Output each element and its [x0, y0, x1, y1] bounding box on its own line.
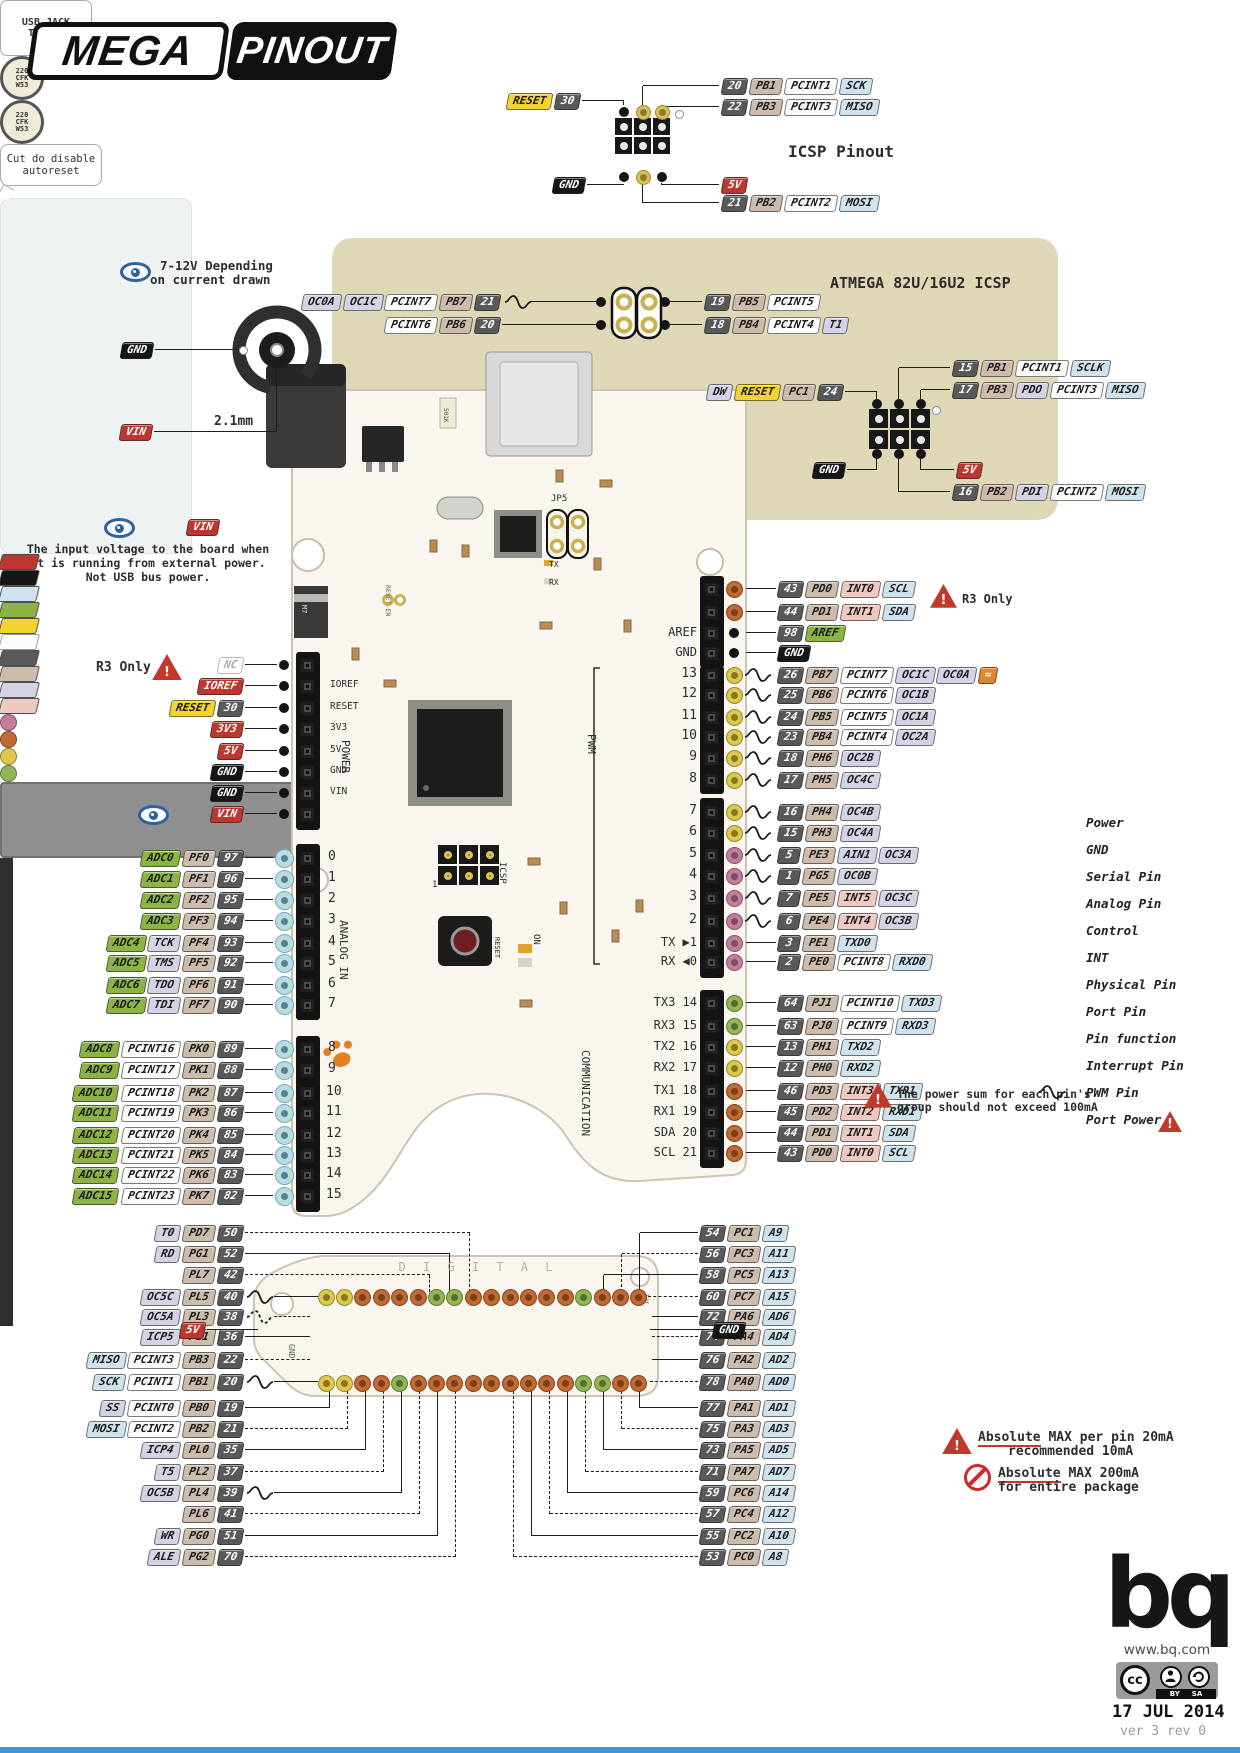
pin-chip-adc14: ADC14 — [72, 1167, 120, 1184]
pin-label-row: 60PC7A15 — [700, 1288, 795, 1306]
legend-label: Port Power — [1086, 1112, 1161, 1127]
wire — [245, 1048, 273, 1049]
wire — [899, 491, 950, 492]
wire — [623, 101, 624, 105]
pin-chip-90: 90 — [216, 997, 244, 1014]
pin-chip-pb2: PB2 — [980, 484, 1015, 501]
wire — [642, 86, 643, 105]
pin-chip-pcint23: PCINT23 — [120, 1188, 181, 1205]
pin-label-row: 15PH3OC4A — [778, 824, 880, 842]
pin-label-row: RDPG152 — [155, 1245, 243, 1263]
pin-dot-bl — [275, 1126, 294, 1145]
pin-dot-bl — [275, 1104, 294, 1123]
pin-chip-13: 13 — [777, 1039, 805, 1056]
bottom-accent-bar — [0, 1747, 1240, 1753]
cc-by-icon — [1160, 1666, 1182, 1688]
pwm-squiggle-icon — [744, 889, 772, 911]
board-silk-text: IOREF — [330, 679, 359, 690]
pin-chip-pcint8: PCINT8 — [836, 954, 891, 971]
wire — [502, 324, 597, 325]
pin-chip-pk7: PK7 — [181, 1188, 216, 1205]
pin-label-row: GND — [713, 1321, 745, 1339]
board-silk-text: SCL 21 — [654, 1145, 697, 1159]
wire — [245, 750, 277, 751]
pin-chip-oc2b: OC2B — [840, 750, 881, 767]
wire — [898, 368, 899, 399]
board-silk-text: POWER — [339, 740, 352, 773]
wire — [621, 1254, 622, 1292]
pin-chip-pcint6: PCINT6 — [840, 687, 895, 704]
wire — [365, 1386, 366, 1450]
pin-chip-44: 44 — [777, 1125, 805, 1142]
pin-chip-18: 18 — [704, 317, 732, 334]
pin-chip-pcint22: PCINT22 — [120, 1167, 181, 1184]
wire — [746, 1002, 776, 1003]
pin-dot-pk — [726, 847, 743, 864]
pin-chip-20: 20 — [473, 317, 501, 334]
header-pin — [301, 702, 314, 715]
pin-dot-or — [354, 1289, 371, 1306]
pin-chip-pb3: PB3 — [980, 382, 1015, 399]
wire — [746, 961, 776, 962]
footer-version: ver 3 rev 0 — [1120, 1724, 1206, 1739]
pin-label-row: MOSIPCINT2PB221 — [87, 1420, 243, 1438]
board-silk-text: 3V3 — [330, 722, 347, 733]
header-pin — [705, 1106, 718, 1119]
pin-chip-pg5: PG5 — [802, 868, 837, 885]
pin-chip-pc1: PC1 — [781, 384, 816, 401]
pin-dot-bk — [279, 681, 289, 691]
pin-chip-6: 6 — [777, 913, 802, 930]
pin-chip-int0: INT0 — [840, 1145, 881, 1162]
pin-label-row: MISOPCINT3PB322 — [87, 1351, 243, 1369]
note-text: it is running from external power. — [18, 556, 278, 570]
wire — [429, 1275, 430, 1292]
pin-dot-bl — [275, 849, 294, 868]
wire — [245, 1407, 330, 1408]
pin-dot-bk — [660, 297, 670, 307]
cc-icon: cc — [1120, 1665, 1150, 1695]
pin-chip-gnd: GND — [712, 1322, 747, 1339]
pin-chip-30: 30 — [553, 93, 581, 110]
header-pin — [705, 997, 718, 1010]
note-text: The input voltage to the board when — [18, 542, 278, 556]
pin-chip-96: 96 — [216, 871, 244, 888]
pin-chip-pb2: PB2 — [749, 195, 784, 212]
pin-chip-pg0: PG0 — [181, 1528, 216, 1545]
atmega-panel-title: ATMEGA 82U/16U2 ICSP — [830, 274, 1011, 292]
wire — [643, 202, 719, 203]
pin-chip-a8: A8 — [762, 1549, 790, 1566]
pin-chip-nc: NC — [216, 657, 244, 674]
pin-chip-92: 92 — [216, 955, 244, 972]
pin-dot-bl — [275, 1146, 294, 1165]
pwm-squiggle-icon — [744, 803, 772, 825]
pin-label-row: 5V — [218, 742, 243, 760]
board-silk-text: JP5 — [551, 494, 567, 504]
pin-dot-bl — [275, 996, 294, 1015]
pin-chip-tdi: TDI — [147, 997, 182, 1014]
wire — [746, 632, 776, 633]
header-pin — [301, 1087, 314, 1100]
pin-dot-ye — [318, 1375, 335, 1392]
wire — [154, 431, 277, 432]
wire — [568, 1492, 698, 1493]
pin-dot-or — [410, 1375, 427, 1392]
pin-chip-pcint1: PCINT1 — [784, 78, 839, 95]
legend-swatch-ana — [0, 602, 40, 618]
pin-dot-bl — [275, 1084, 294, 1103]
pin-chip-ad5: AD5 — [762, 1442, 797, 1459]
pin-chip-adc6: ADC6 — [105, 977, 146, 994]
pin-chip-pcint7: PCINT7 — [840, 667, 895, 684]
pin-chip-oc3c: OC3C — [878, 890, 919, 907]
wire — [920, 390, 921, 399]
icsp-header-pin — [911, 430, 930, 449]
pin-chip-58: 58 — [699, 1267, 727, 1284]
board-silk-text: RESET — [330, 701, 359, 712]
board-silk-text: 5 — [328, 954, 336, 969]
pin-dot-or — [630, 1375, 647, 1392]
pin-dot-bl — [275, 870, 294, 889]
board-silk-text: 1 — [432, 880, 437, 890]
pin-chip-12: 12 — [777, 1060, 805, 1077]
wire — [245, 771, 277, 772]
pin-dot-bk — [279, 746, 289, 756]
pin-label-row: VIN — [187, 518, 219, 536]
pin-chip-pb1: PB1 — [181, 1374, 216, 1391]
wire — [604, 1449, 698, 1450]
header-pin — [301, 852, 314, 865]
pin-chip-pk0: PK0 — [181, 1041, 216, 1058]
pin-label-row: ADC0PF097 — [141, 849, 243, 867]
wire — [622, 1428, 698, 1429]
note-text: 7-12V Depending — [160, 258, 273, 273]
pin-chip-sck: SCK — [838, 78, 873, 95]
pin-chip-pk4: PK4 — [181, 1127, 216, 1144]
pin-chip-pl7: PL7 — [181, 1267, 216, 1284]
icsp-header-pin — [459, 845, 478, 864]
pin-chip-pe5: PE5 — [802, 890, 837, 907]
header-pin — [301, 1107, 314, 1120]
pin-chip-pd7: PD7 — [181, 1225, 216, 1242]
pin-label-row: 17PH5OC4C — [778, 771, 880, 789]
pin-chip-pf7: PF7 — [181, 997, 216, 1014]
pin-chip-a14: A14 — [762, 1485, 797, 1502]
pin-chip-icp4: ICP4 — [140, 1442, 181, 1459]
pin-label-row: 5PE3AIN1OC3A — [778, 846, 918, 864]
pin-label-row: 76PA2AD2 — [700, 1351, 795, 1369]
board-silk-text: TX2 16 — [654, 1039, 697, 1053]
board-silk-text: AREF — [668, 625, 697, 639]
footer-date: 17 JUL 2014 — [1112, 1702, 1225, 1722]
pin-dot-or — [726, 1083, 743, 1100]
pin-chip-21: 21 — [216, 1421, 244, 1438]
pin-chip-a12: A12 — [762, 1506, 797, 1523]
pin-chip-adc1: ADC1 — [140, 871, 181, 888]
pin-chip-gnd: GND — [120, 342, 155, 359]
pin-dot-or — [557, 1375, 574, 1392]
pin-dot-or — [502, 1289, 519, 1306]
pin-dot-or — [483, 1289, 500, 1306]
wire — [245, 813, 277, 814]
pin-chip-2: 2 — [777, 954, 802, 971]
pin-chip-rxd3: RXD3 — [894, 1018, 935, 1035]
header-pin — [705, 731, 718, 744]
pin-chip-17: 17 — [777, 772, 805, 789]
legend-swatch-ser — [0, 586, 40, 602]
pin-dot-pk — [726, 868, 743, 885]
pin-chip-19: 19 — [216, 1400, 244, 1417]
pin-chip-ph0: PH0 — [805, 1060, 840, 1077]
pin-label-row: PL742 — [183, 1266, 243, 1284]
pin-dot-ye — [726, 729, 743, 746]
pin-chip-55: 55 — [699, 1528, 727, 1545]
pin-label-row: ICP4PL035 — [141, 1441, 243, 1459]
header-pin — [301, 787, 314, 800]
pin-label-row: PCINT6PB620 — [385, 316, 500, 334]
board-silk-text: 9 — [328, 1061, 336, 1076]
wire — [876, 459, 877, 470]
pin-chip-pcint2: PCINT2 — [127, 1421, 182, 1438]
pin-label-row: 7PE5INT5OC3C — [778, 889, 918, 907]
pin-chip-22: 22 — [216, 1352, 244, 1369]
cc-license-badge: cc BYSA — [1116, 1662, 1218, 1699]
pin-chip-37: 37 — [216, 1464, 244, 1481]
pin-label-row: 98AREF — [778, 624, 845, 642]
pin-chip-rxd0: RXD0 — [891, 954, 932, 971]
header-pin — [705, 1147, 718, 1160]
pin-chip-pb4: PB4 — [732, 317, 767, 334]
pin-label-row: 5V — [957, 461, 982, 479]
board-silk-text: 8 — [328, 1040, 336, 1055]
pin-label-row: IOREF — [198, 677, 243, 695]
icsp-header-pin — [634, 137, 651, 154]
pin-chip-pcint2: PCINT2 — [1050, 484, 1105, 501]
pin-chip-pcint3: PCINT3 — [127, 1352, 182, 1369]
wire — [746, 1152, 776, 1153]
pin-chip-pcint19: PCINT19 — [120, 1105, 181, 1122]
pin-chip-57: 57 — [699, 1506, 727, 1523]
pin-chip-pa1: PA1 — [727, 1400, 762, 1417]
pin-dot-bl — [275, 1040, 294, 1059]
mega-pinout-diagram: MEGA PINOUT ICSP Pinout ATMEGA 82U/16U2 … — [0, 0, 1240, 1753]
pin-chip-97: 97 — [216, 850, 244, 867]
pin-chip-pk5: PK5 — [181, 1147, 216, 1164]
pin-chip-oc0a: OC0A — [936, 667, 977, 684]
header-pin — [705, 689, 718, 702]
pin-chip-21: 21 — [721, 195, 749, 212]
bq-logo: bq — [1104, 1548, 1230, 1640]
board-silk-text: 11 — [326, 1104, 342, 1119]
pin-label-row: 13PH1TXD2 — [778, 1038, 880, 1056]
pin-chip-dw: DW — [705, 384, 733, 401]
pin-label-row: VIN — [211, 805, 243, 823]
header-pin — [705, 827, 718, 840]
board-silk-text: 11 — [681, 708, 697, 723]
header-pin — [705, 711, 718, 724]
pin-dot-bk — [596, 320, 606, 330]
pin-label-row: ALEPG270 — [148, 1548, 243, 1566]
legend-label: INT — [1086, 950, 1109, 965]
logo-pinout: PINOUT — [226, 22, 398, 80]
pin-chip-51: 51 — [216, 1528, 244, 1545]
pin-dot-gold — [636, 170, 651, 185]
wire — [383, 1386, 384, 1472]
pin-dot-gold — [636, 105, 651, 120]
pwm-squiggle-icon — [744, 824, 772, 846]
pin-chip-pb5: PB5 — [732, 294, 767, 311]
header-pin — [705, 1085, 718, 1098]
wire — [898, 459, 899, 492]
header-pin — [301, 937, 314, 950]
pin-dot-pk — [726, 935, 743, 952]
pin-dot-bk — [660, 320, 670, 330]
wire — [639, 1233, 640, 1292]
pin-dot-bl — [275, 1187, 294, 1206]
wire — [847, 469, 877, 470]
board-silk-text: 7 — [328, 996, 336, 1011]
pin-dot-ye — [318, 1289, 335, 1306]
pin-chip-pd3: PD3 — [805, 1083, 840, 1100]
wire — [746, 1067, 776, 1068]
pin-dot-gr — [391, 1375, 408, 1392]
pin-chip-oc5b: OC5B — [140, 1485, 181, 1502]
pin-chip-pb3: PB3 — [181, 1352, 216, 1369]
pin-chip-miso: MISO — [1104, 382, 1145, 399]
pin-label-row: RESET30 — [507, 92, 580, 110]
wire — [876, 392, 877, 399]
pin-chip-oc2a: OC2A — [894, 729, 935, 746]
pin-chip-70: 70 — [216, 1549, 244, 1566]
pwm-squiggle-icon — [744, 749, 772, 771]
pin-chip-46: 46 — [777, 1083, 805, 1100]
pin-chip-adc11: ADC11 — [72, 1105, 120, 1122]
pin-chip-pb3: PB3 — [749, 99, 784, 116]
pin-chip-pk2: PK2 — [181, 1085, 216, 1102]
pin-chip-pb2: PB2 — [181, 1421, 216, 1438]
pin-dot-ye — [336, 1375, 353, 1392]
pwm-squiggle-icon — [246, 1484, 274, 1506]
board-silk-text: RX2 17 — [654, 1060, 697, 1074]
pin-label-row: 55PC2A10 — [700, 1527, 795, 1545]
pin-chip-adc4: ADC4 — [105, 935, 146, 952]
legend-label: Control — [1086, 923, 1139, 938]
header-pin — [705, 915, 718, 928]
pin-chip-98: 98 — [777, 625, 805, 642]
wire — [245, 1471, 384, 1472]
pin-dot-or — [726, 581, 743, 598]
pin-dot-or — [502, 1375, 519, 1392]
pin-dot-or — [538, 1289, 555, 1306]
icsp-pinout-title: ICSP Pinout — [788, 142, 894, 161]
wire — [662, 106, 719, 107]
pin-chip-77: 77 — [699, 1400, 727, 1417]
note-text: R3 Only — [96, 660, 151, 675]
pin-dot-ye — [726, 1060, 743, 1077]
header-pin — [301, 745, 314, 758]
pin-chip-pl6: PL6 — [181, 1506, 216, 1523]
wire — [245, 899, 273, 900]
wire — [650, 1381, 698, 1382]
board-silk-text: M7 — [300, 605, 308, 613]
icsp-header-pin — [890, 409, 909, 428]
pin-chip-3v3: 3V3 — [210, 721, 245, 738]
pwm-squiggle-icon — [246, 1373, 274, 1395]
wire — [746, 1046, 776, 1047]
pin-header-strip — [296, 1036, 320, 1212]
pin-label-row: ADC1PF196 — [141, 870, 243, 888]
board-silk-text: 0 — [328, 849, 336, 864]
pin-chip-ad7: AD7 — [762, 1464, 797, 1481]
pin-chip-16: 16 — [777, 804, 805, 821]
pin-chip-83: 83 — [216, 1167, 244, 1184]
pin-chip-adc13: ADC13 — [72, 1147, 120, 1164]
pin-chip-oc4a: OC4A — [840, 825, 881, 842]
pin-chip-56: 56 — [699, 1246, 727, 1263]
pin-chip-26: 26 — [777, 667, 805, 684]
board-silk-text: 9 — [689, 749, 697, 764]
pin-chip-pd0: PD0 — [805, 1145, 840, 1162]
pin-chip-pcint4: PCINT4 — [840, 729, 895, 746]
pin-chip-a11: A11 — [762, 1246, 797, 1263]
wire — [899, 367, 950, 368]
pin-chip-84: 84 — [216, 1147, 244, 1164]
pin-chip-86: 86 — [216, 1105, 244, 1122]
pin-dot-or — [483, 1375, 500, 1392]
pin-label-row: ADC13PCINT21PK584 — [73, 1146, 243, 1164]
pin-chip-pa2: PA2 — [727, 1352, 762, 1369]
pin-dot-gr — [726, 1018, 743, 1035]
icsp-header-pin — [653, 118, 670, 135]
pin-chip-ph5: PH5 — [805, 772, 840, 789]
pin-dot-or — [520, 1289, 537, 1306]
pin-chip-pg2: PG2 — [181, 1549, 216, 1566]
wire — [746, 1090, 776, 1091]
legend-label: Physical Pin — [1086, 977, 1176, 992]
pin-chip-scl: SCL — [881, 1145, 916, 1162]
wire — [245, 792, 277, 793]
pin-chip-pcint10: PCINT10 — [840, 995, 901, 1012]
pin-label-row: 16PH4OC4B — [778, 803, 880, 821]
pin-chip-sck: SCK — [92, 1374, 127, 1391]
pin-chip-adc8: ADC8 — [79, 1041, 120, 1058]
board-silk-text: TX1 18 — [654, 1083, 697, 1097]
pin-chip-19: 19 — [704, 294, 732, 311]
pin-dot-or — [428, 1375, 445, 1392]
note-text: group should not exceed 100mA — [897, 1100, 1098, 1114]
board-silk-text: 12 — [326, 1126, 342, 1141]
header-pin — [301, 873, 314, 886]
pin-chip-pcint1: PCINT1 — [127, 1374, 182, 1391]
pin-chip-pc4: PC4 — [727, 1506, 762, 1523]
wire — [245, 685, 277, 686]
pin-chip-icp5: ICP5 — [140, 1329, 181, 1346]
pwm-squiggle-icon — [744, 686, 772, 708]
header-pin — [301, 723, 314, 736]
pin-chip-pa0: PA0 — [727, 1374, 762, 1391]
pin-chip-pg1: PG1 — [181, 1246, 216, 1263]
pin-label-row: SCKPCINT1PB120 — [93, 1373, 243, 1391]
pin-chip-pf4: PF4 — [181, 935, 216, 952]
pin-dot-bk — [279, 767, 289, 777]
pin-label-row: ADC8PCINT16PK089 — [80, 1040, 243, 1058]
board-silk-text: 14 — [326, 1166, 342, 1181]
pwm-squiggle-icon — [744, 666, 772, 688]
pin-chip-txd2: TXD2 — [840, 1039, 881, 1056]
pin-dot-bl — [275, 1061, 294, 1080]
pin-chip-pe3: PE3 — [802, 847, 837, 864]
